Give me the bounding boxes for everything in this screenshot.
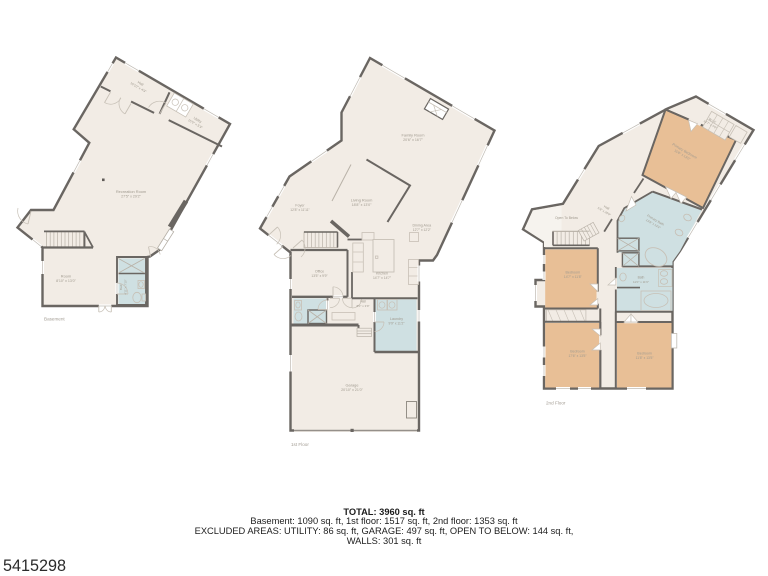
svg-text:Bedroom: Bedroom xyxy=(570,350,585,354)
svg-text:2nd Floor: 2nd Floor xyxy=(546,401,566,406)
svg-text:Office: Office xyxy=(315,270,324,274)
svg-text:14'7" x 14'7": 14'7" x 14'7" xyxy=(373,276,392,280)
svg-text:27'5" x 29'2": 27'5" x 29'2" xyxy=(121,194,141,198)
svg-text:1st Floor: 1st Floor xyxy=(291,442,309,447)
svg-text:Basement: Basement xyxy=(44,317,65,322)
svg-text:12'7" x 12'2": 12'7" x 12'2" xyxy=(413,228,432,232)
svg-text:13'5" x 9'9": 13'5" x 9'9" xyxy=(311,274,328,278)
svg-text:Recreation Room: Recreation Room xyxy=(116,189,146,194)
svg-text:Garage: Garage xyxy=(346,383,359,388)
svg-text:4'11" x 7'10": 4'11" x 7'10" xyxy=(123,279,127,294)
svg-text:Hall: Hall xyxy=(360,300,366,304)
svg-text:Dining Area: Dining Area xyxy=(413,224,432,228)
svg-text:8'10" x 13'0": 8'10" x 13'0" xyxy=(56,279,76,283)
svg-text:Bedroom: Bedroom xyxy=(566,271,581,275)
svg-text:18'8" x 13'0": 18'8" x 13'0" xyxy=(352,203,372,207)
svg-text:11'8" x 13'5": 11'8" x 13'5" xyxy=(636,356,655,360)
svg-text:Foyer: Foyer xyxy=(295,204,305,208)
svg-text:14'7" x 11'8": 14'7" x 11'8" xyxy=(564,275,583,279)
svg-text:Bath: Bath xyxy=(119,284,123,291)
svg-text:Kitchen: Kitchen xyxy=(376,272,388,276)
svg-text:9'9" x 11'2": 9'9" x 11'2" xyxy=(388,321,405,325)
svg-text:Family Room: Family Room xyxy=(402,133,425,138)
svg-text:Bedroom: Bedroom xyxy=(637,352,652,356)
svg-text:11'0" x 11'6": 11'0" x 11'6" xyxy=(633,280,649,284)
svg-text:8'0" x 3'9": 8'0" x 3'9" xyxy=(356,304,369,308)
svg-text:Laundry: Laundry xyxy=(390,317,403,321)
svg-text:20'6" x 16'7": 20'6" x 16'7" xyxy=(403,138,423,142)
svg-text:Open To Below: Open To Below xyxy=(555,216,578,220)
svg-text:Living Room: Living Room xyxy=(351,198,373,203)
svg-text:Room: Room xyxy=(61,274,71,279)
svg-text:Bath: Bath xyxy=(638,276,645,280)
svg-text:20'10" x 21'0": 20'10" x 21'0" xyxy=(341,388,363,392)
svg-text:12'8" x 11'11": 12'8" x 11'11" xyxy=(290,208,310,212)
svg-text:17'6" x 13'5": 17'6" x 13'5" xyxy=(568,354,587,358)
